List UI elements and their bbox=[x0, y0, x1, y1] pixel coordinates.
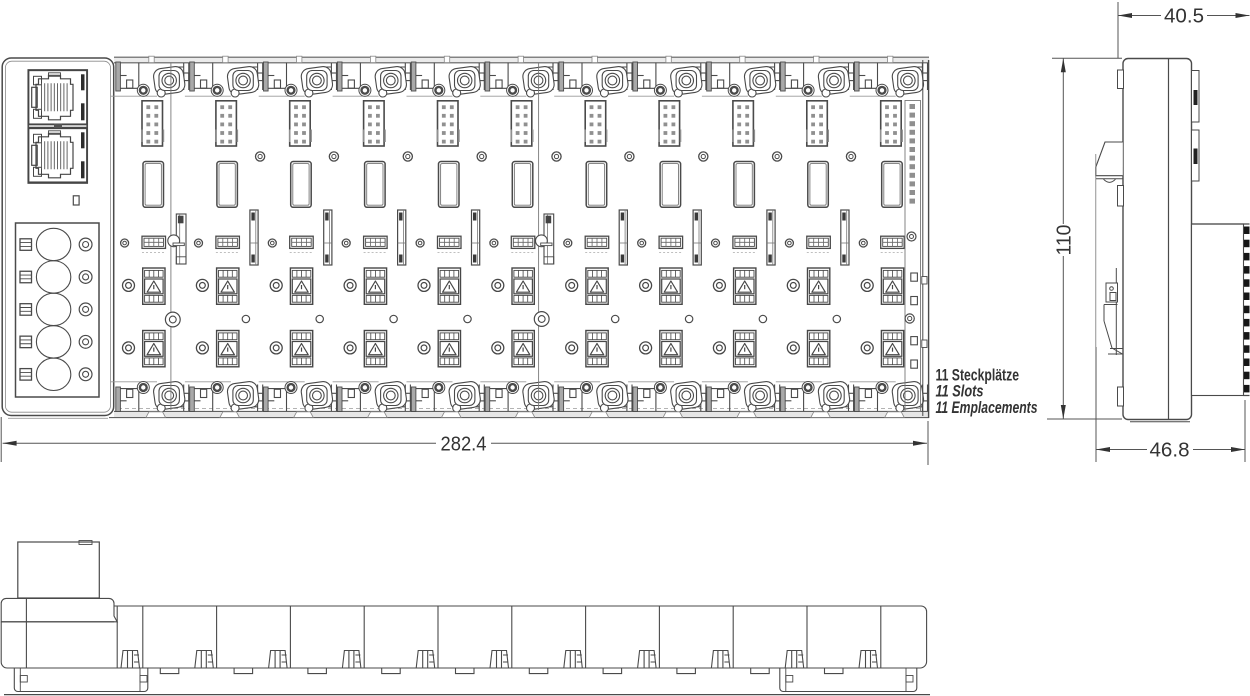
svg-text:11 Steckplätze: 11 Steckplätze bbox=[936, 366, 1020, 384]
svg-text:110: 110 bbox=[1052, 225, 1075, 256]
svg-text:11 Emplacements: 11 Emplacements bbox=[936, 399, 1038, 417]
svg-text:11 Slots: 11 Slots bbox=[936, 383, 984, 401]
svg-text:46.8: 46.8 bbox=[1150, 439, 1190, 462]
svg-text:282.4: 282.4 bbox=[441, 432, 487, 455]
svg-text:40.5: 40.5 bbox=[1164, 5, 1204, 28]
